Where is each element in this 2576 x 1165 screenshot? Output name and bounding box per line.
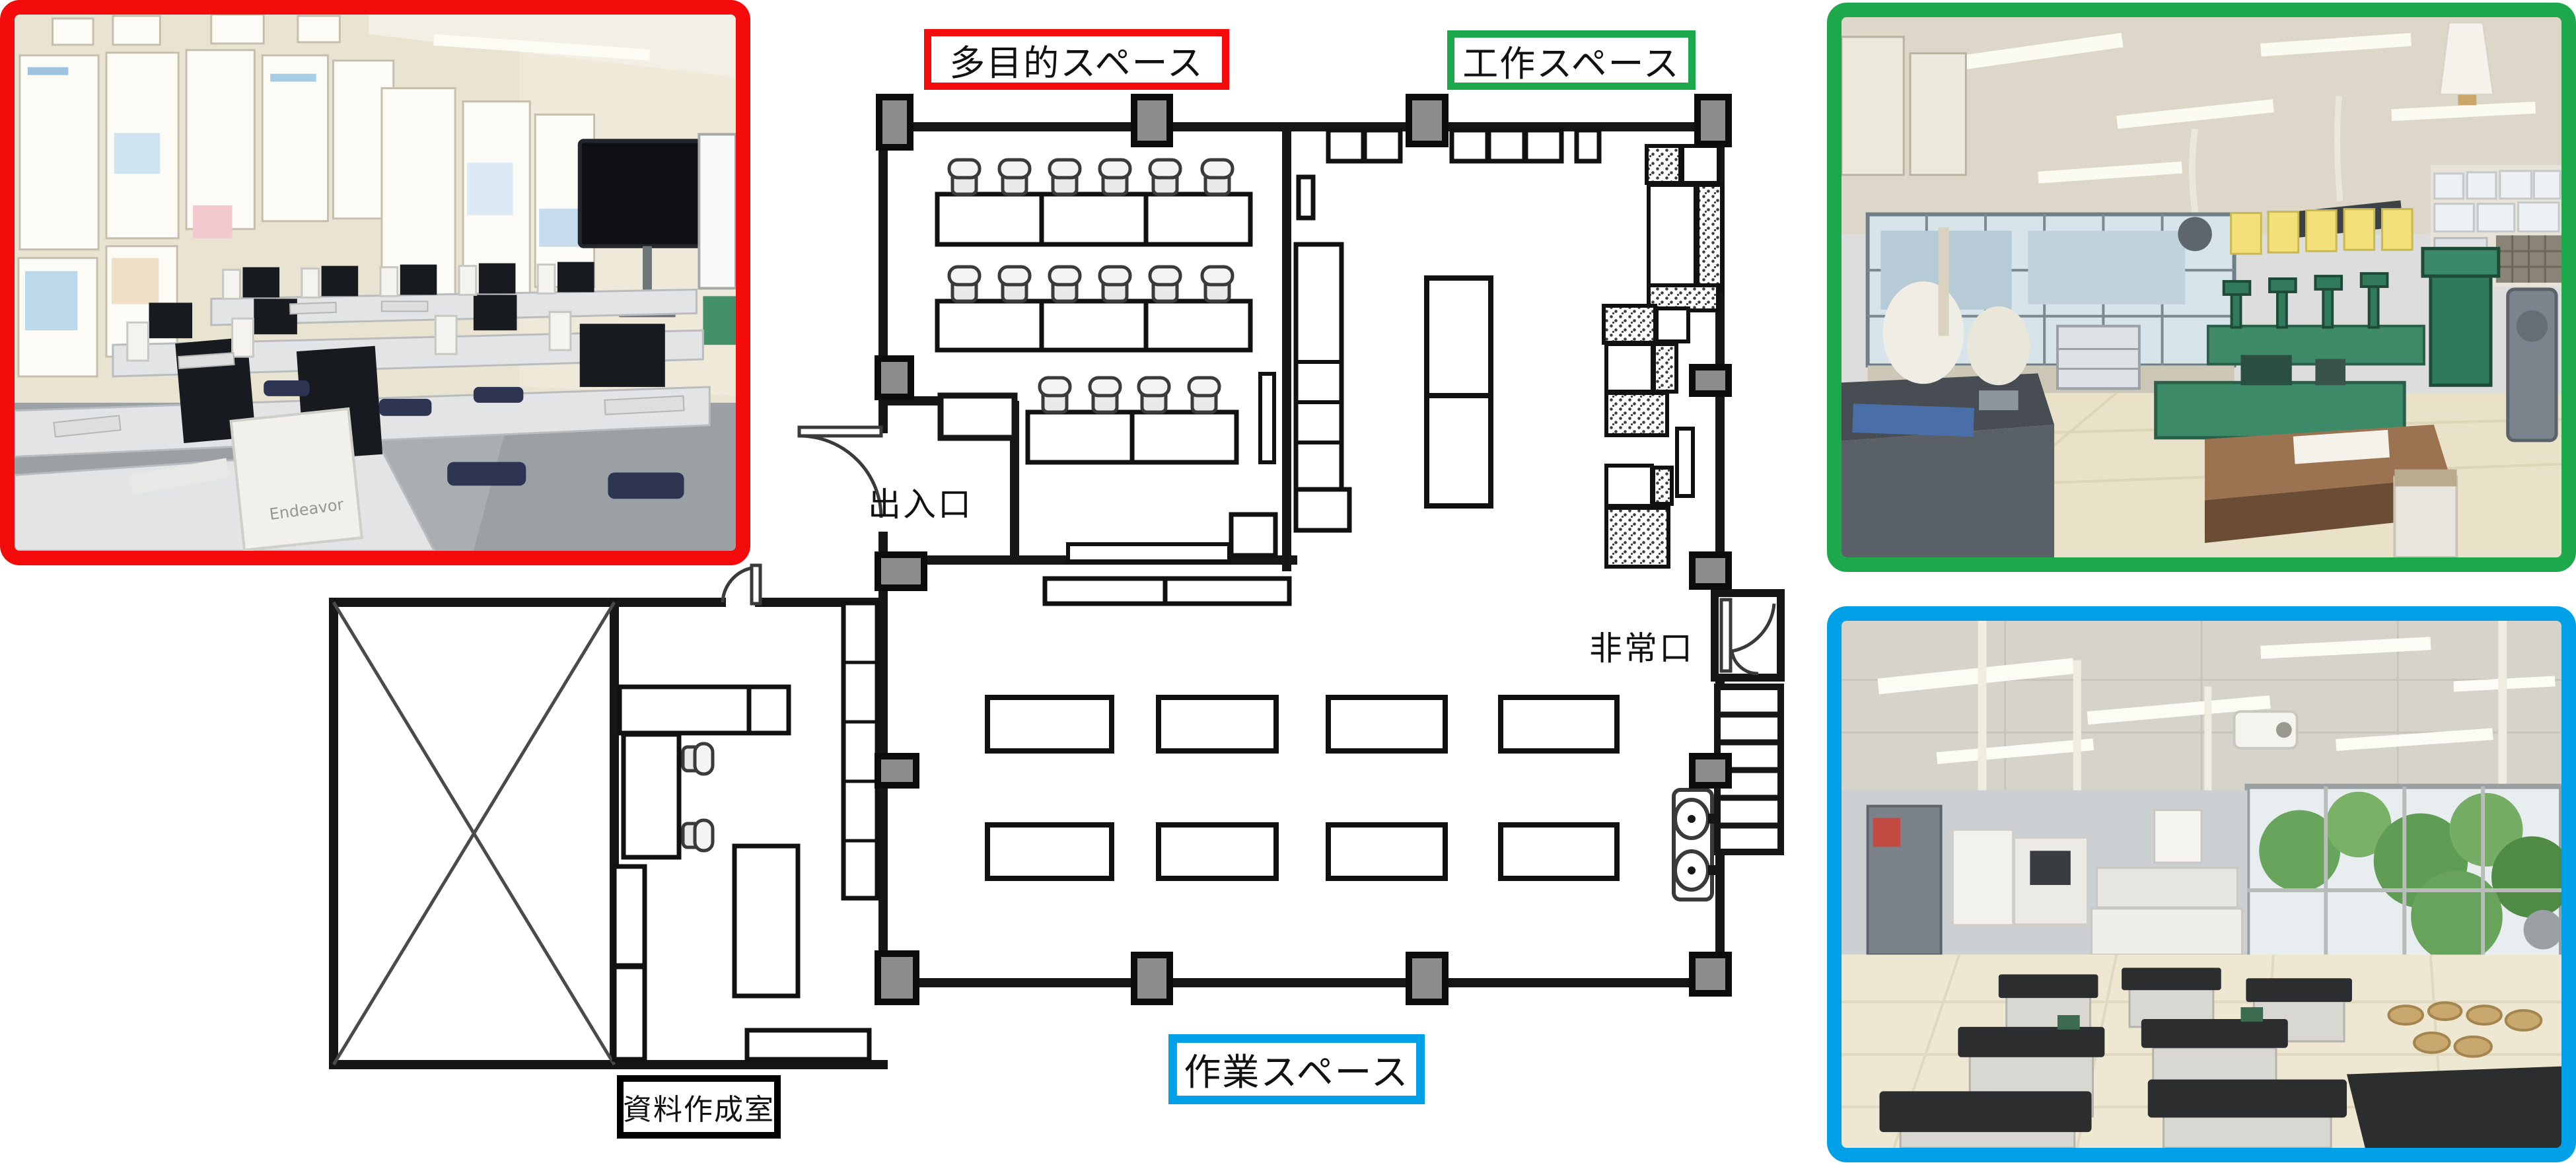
tables-below-multipurpose [1045, 579, 1289, 604]
multipurpose-whiteboard [1260, 374, 1274, 462]
left-wall [1842, 791, 2247, 955]
workspace-tables [987, 697, 1617, 878]
computer-room-illustration: Endeavor [15, 15, 736, 551]
label-material-room: 資料作成室 [617, 1075, 781, 1139]
computer-room-photo: Endeavor [0, 0, 750, 565]
label-work-space: 作業スペース [1168, 1034, 1425, 1104]
label-multipurpose-text: 多目的スペース [949, 34, 1204, 86]
label-work-text: 作業スペース [1184, 1043, 1409, 1096]
material-room-door-icon [723, 565, 760, 604]
emergency-door-icon [1715, 593, 1781, 678]
label-craft-space: 工作スペース [1447, 30, 1696, 90]
craft-room-illustration [1842, 17, 2561, 557]
work-room-illustration [1842, 621, 2561, 1148]
material-room-furniture [614, 603, 877, 1059]
storage-x-area [334, 602, 614, 1065]
label-material-text: 資料作成室 [623, 1086, 775, 1128]
label-multipurpose-space: 多目的スペース [924, 29, 1229, 90]
workshop-center-bench [1427, 278, 1491, 506]
work-room-photo [1827, 606, 2576, 1162]
workshop-machines [1604, 146, 1722, 567]
label-entrance: 出入口 [868, 478, 973, 526]
wall-fan [2524, 910, 2561, 950]
page: 多目的スペース 工作スペース 作業スペース 資料作成室 出入口 非常口 [0, 0, 2576, 1165]
sink-icon [1674, 790, 1716, 900]
material-room-chairs [683, 744, 713, 851]
green-desk [703, 296, 736, 345]
multipurpose-cart [1231, 514, 1275, 555]
vestibule-closet [941, 396, 1015, 438]
yellow-cards [2231, 209, 2412, 254]
workshop-wall-cabinets [1328, 130, 1599, 161]
label-emergency-exit: 非常口 [1589, 622, 1694, 670]
left-posters [1842, 37, 1966, 175]
pendant-lamp [2440, 22, 2493, 105]
workshop-shelves [1296, 177, 1349, 530]
whiteboard [699, 134, 736, 288]
craft-room-photo [1827, 3, 2576, 572]
projector [2235, 711, 2297, 748]
label-craft-text: 工作スペース [1462, 34, 1680, 87]
multipurpose-counter [1068, 544, 1229, 561]
